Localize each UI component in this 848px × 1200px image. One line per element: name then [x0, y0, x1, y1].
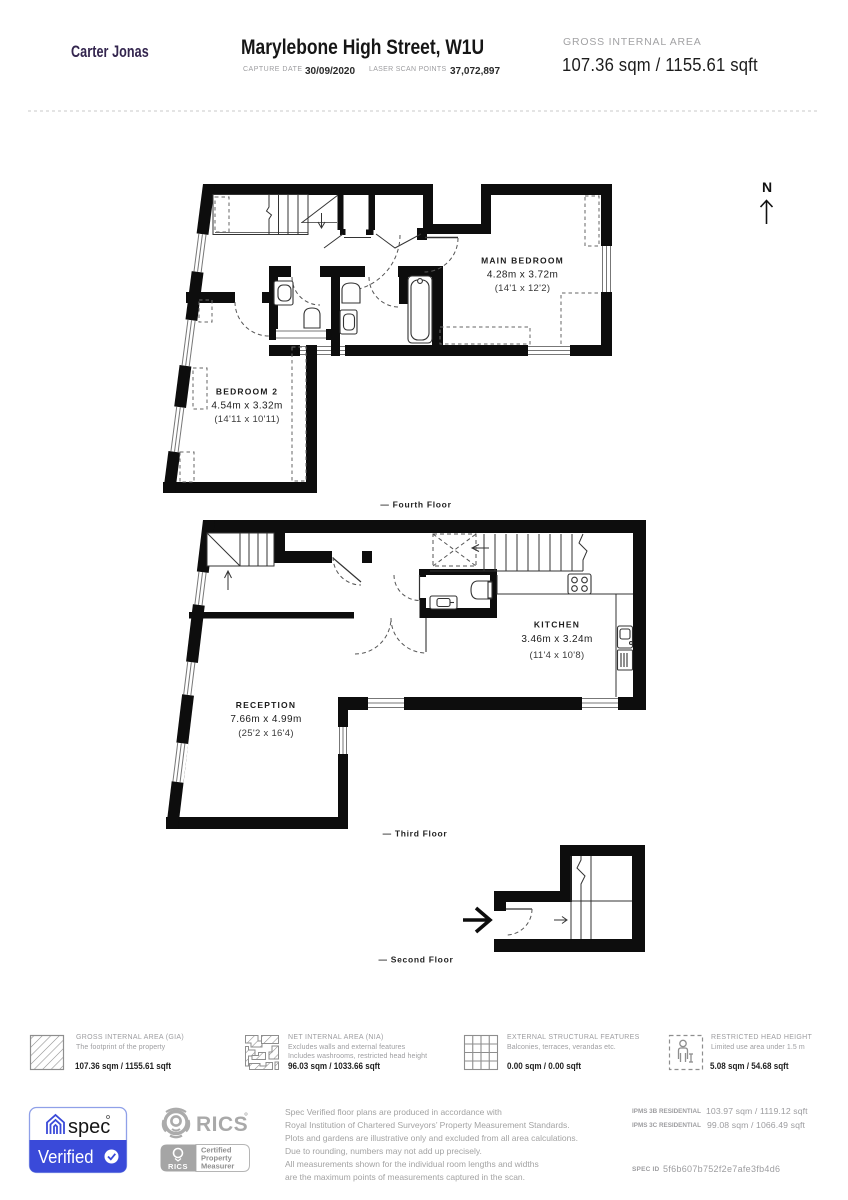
svg-text:(25'2 x 16'4): (25'2 x 16'4) [238, 728, 294, 739]
svg-text:(11'4 x 10'8): (11'4 x 10'8) [530, 650, 585, 661]
svg-text:KITCHEN: KITCHEN [534, 620, 580, 630]
svg-text:N: N [762, 179, 772, 195]
svg-text:(14'11 x 10'11): (14'11 x 10'11) [214, 414, 279, 425]
svg-text:Measurer: Measurer [201, 1162, 234, 1171]
svg-text:3.46m x 3.24m: 3.46m x 3.24m [521, 634, 592, 645]
svg-text:7.66m x 4.99m: 7.66m x 4.99m [230, 714, 301, 725]
svg-text:MAIN BEDROOM: MAIN BEDROOM [481, 256, 564, 266]
svg-text:BEDROOM 2: BEDROOM 2 [216, 387, 278, 397]
svg-text:Verified: Verified [38, 1146, 93, 1167]
svg-text:(14'1 x 12'2): (14'1 x 12'2) [495, 283, 551, 294]
svg-text:RECEPTION: RECEPTION [236, 700, 296, 710]
svg-text:spec: spec [68, 1116, 110, 1138]
svg-text:— Fourth Floor: — Fourth Floor [380, 500, 451, 510]
svg-text:4.28m x 3.72m: 4.28m x 3.72m [487, 270, 558, 281]
svg-text:— Third Floor: — Third Floor [383, 829, 448, 839]
svg-text:4.54m x 3.32m: 4.54m x 3.32m [211, 401, 282, 412]
svg-text:RICS: RICS [196, 1113, 248, 1136]
svg-text:— Second Floor: — Second Floor [379, 955, 454, 965]
svg-text:RICS: RICS [168, 1162, 188, 1171]
